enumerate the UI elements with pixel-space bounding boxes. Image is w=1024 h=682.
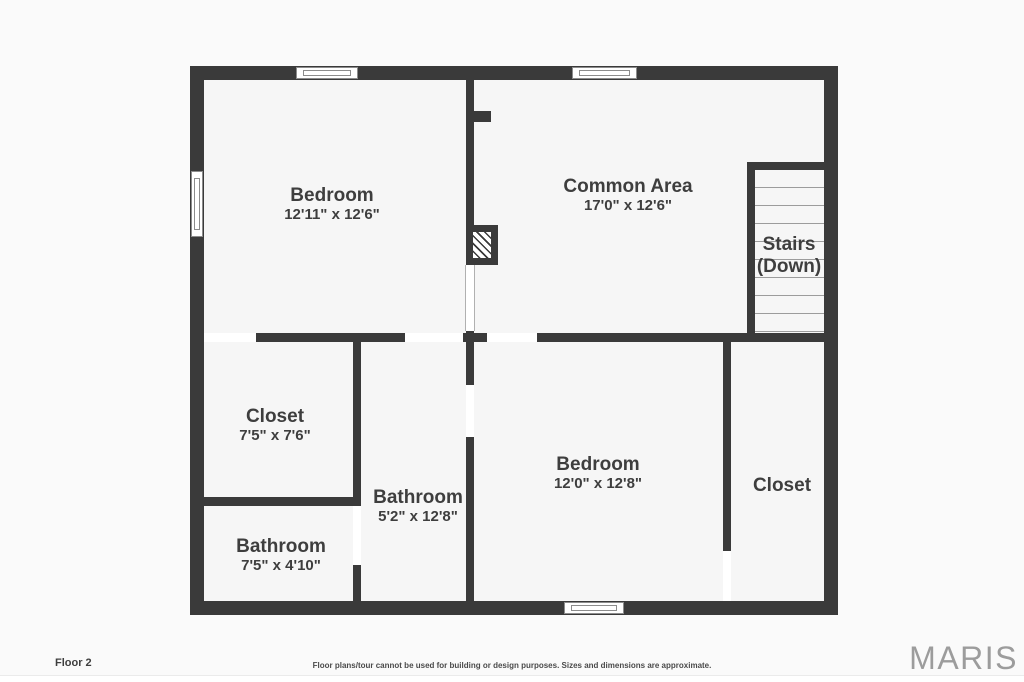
floor-plan-canvas: Bedroom 12'11" x 12'6" Common Area 17'0"…: [0, 0, 1024, 682]
window-pane: [579, 70, 630, 76]
room-name: Common Area: [528, 177, 728, 197]
room-dimensions: 5'2" x 12'8": [338, 508, 498, 526]
window-top-common-area: [572, 67, 637, 79]
window-pane: [303, 70, 351, 76]
room-name: Closet: [732, 476, 832, 496]
room-label-bathroom-lower: Bathroom 7'5" x 4'10": [201, 537, 361, 575]
disclaimer-text: Floor plans/tour cannot be used for buil…: [0, 661, 1024, 670]
chimney-flue-hatch: [472, 231, 492, 259]
wall-middle-horizontal-seg3: [537, 333, 824, 342]
wall-center-vertical-mid: [466, 342, 474, 385]
wall-center-vertical-upper: [466, 80, 474, 225]
room-name: Bathroom: [338, 488, 498, 508]
room-label-common-area: Common Area 17'0" x 12'6": [528, 177, 728, 215]
stairs-label-line2: (Down): [741, 256, 837, 278]
room-label-bathroom-middle: Bathroom 5'2" x 12'8": [338, 488, 498, 526]
room-label-bedroom-lower: Bedroom 12'0" x 12'8": [498, 455, 698, 493]
room-dimensions: 12'0" x 12'8": [498, 475, 698, 493]
room-dimensions: 7'5" x 7'6": [195, 427, 355, 445]
room-name: Bathroom: [201, 537, 361, 557]
window-bottom-bedroom: [564, 602, 624, 614]
room-label-bedroom-top: Bedroom 12'11" x 12'6": [232, 186, 432, 224]
footer-strip: [0, 675, 1024, 682]
door-opening-closet-lower: [723, 551, 731, 601]
cased-opening: [465, 265, 475, 331]
exterior-wall-bottom: [190, 601, 838, 615]
wall-stairwell-top: [755, 162, 824, 170]
room-dimensions: 7'5" x 4'10": [201, 557, 361, 575]
brand-logo: MARIS: [909, 640, 1018, 677]
window-pane: [571, 605, 617, 611]
chimney: [466, 225, 498, 265]
exterior-wall-top: [190, 66, 838, 80]
wall-stub-common-area: [474, 111, 491, 122]
exterior-wall-right: [824, 66, 838, 615]
window-top-bedroom: [296, 67, 358, 79]
exterior-wall-left: [190, 66, 204, 615]
window-left-bedroom: [191, 171, 203, 237]
window-pane: [194, 178, 200, 230]
stairs-label-line1: Stairs: [741, 234, 837, 256]
room-label-closet-upper: Closet 7'5" x 7'6": [195, 407, 355, 445]
wall-middle-horizontal-seg1: [256, 333, 405, 342]
room-dimensions: 17'0" x 12'6": [528, 197, 728, 215]
wall-bedroom-closet-vertical: [723, 342, 731, 551]
door-opening-closet-upper: [204, 333, 256, 342]
room-name: Bedroom: [232, 186, 432, 206]
room-name: Bedroom: [498, 455, 698, 475]
wall-middle-horizontal-seg2: [463, 333, 487, 342]
room-name: Closet: [195, 407, 355, 427]
door-opening-bathroom-middle: [405, 333, 463, 342]
room-dimensions: 12'11" x 12'6": [232, 206, 432, 224]
room-label-closet-lower: Closet: [732, 476, 832, 496]
door-opening-bedroom-lower: [487, 333, 537, 342]
door-opening-bathroom-bedroom: [466, 385, 474, 437]
room-label-stairs: Stairs (Down): [741, 234, 837, 278]
